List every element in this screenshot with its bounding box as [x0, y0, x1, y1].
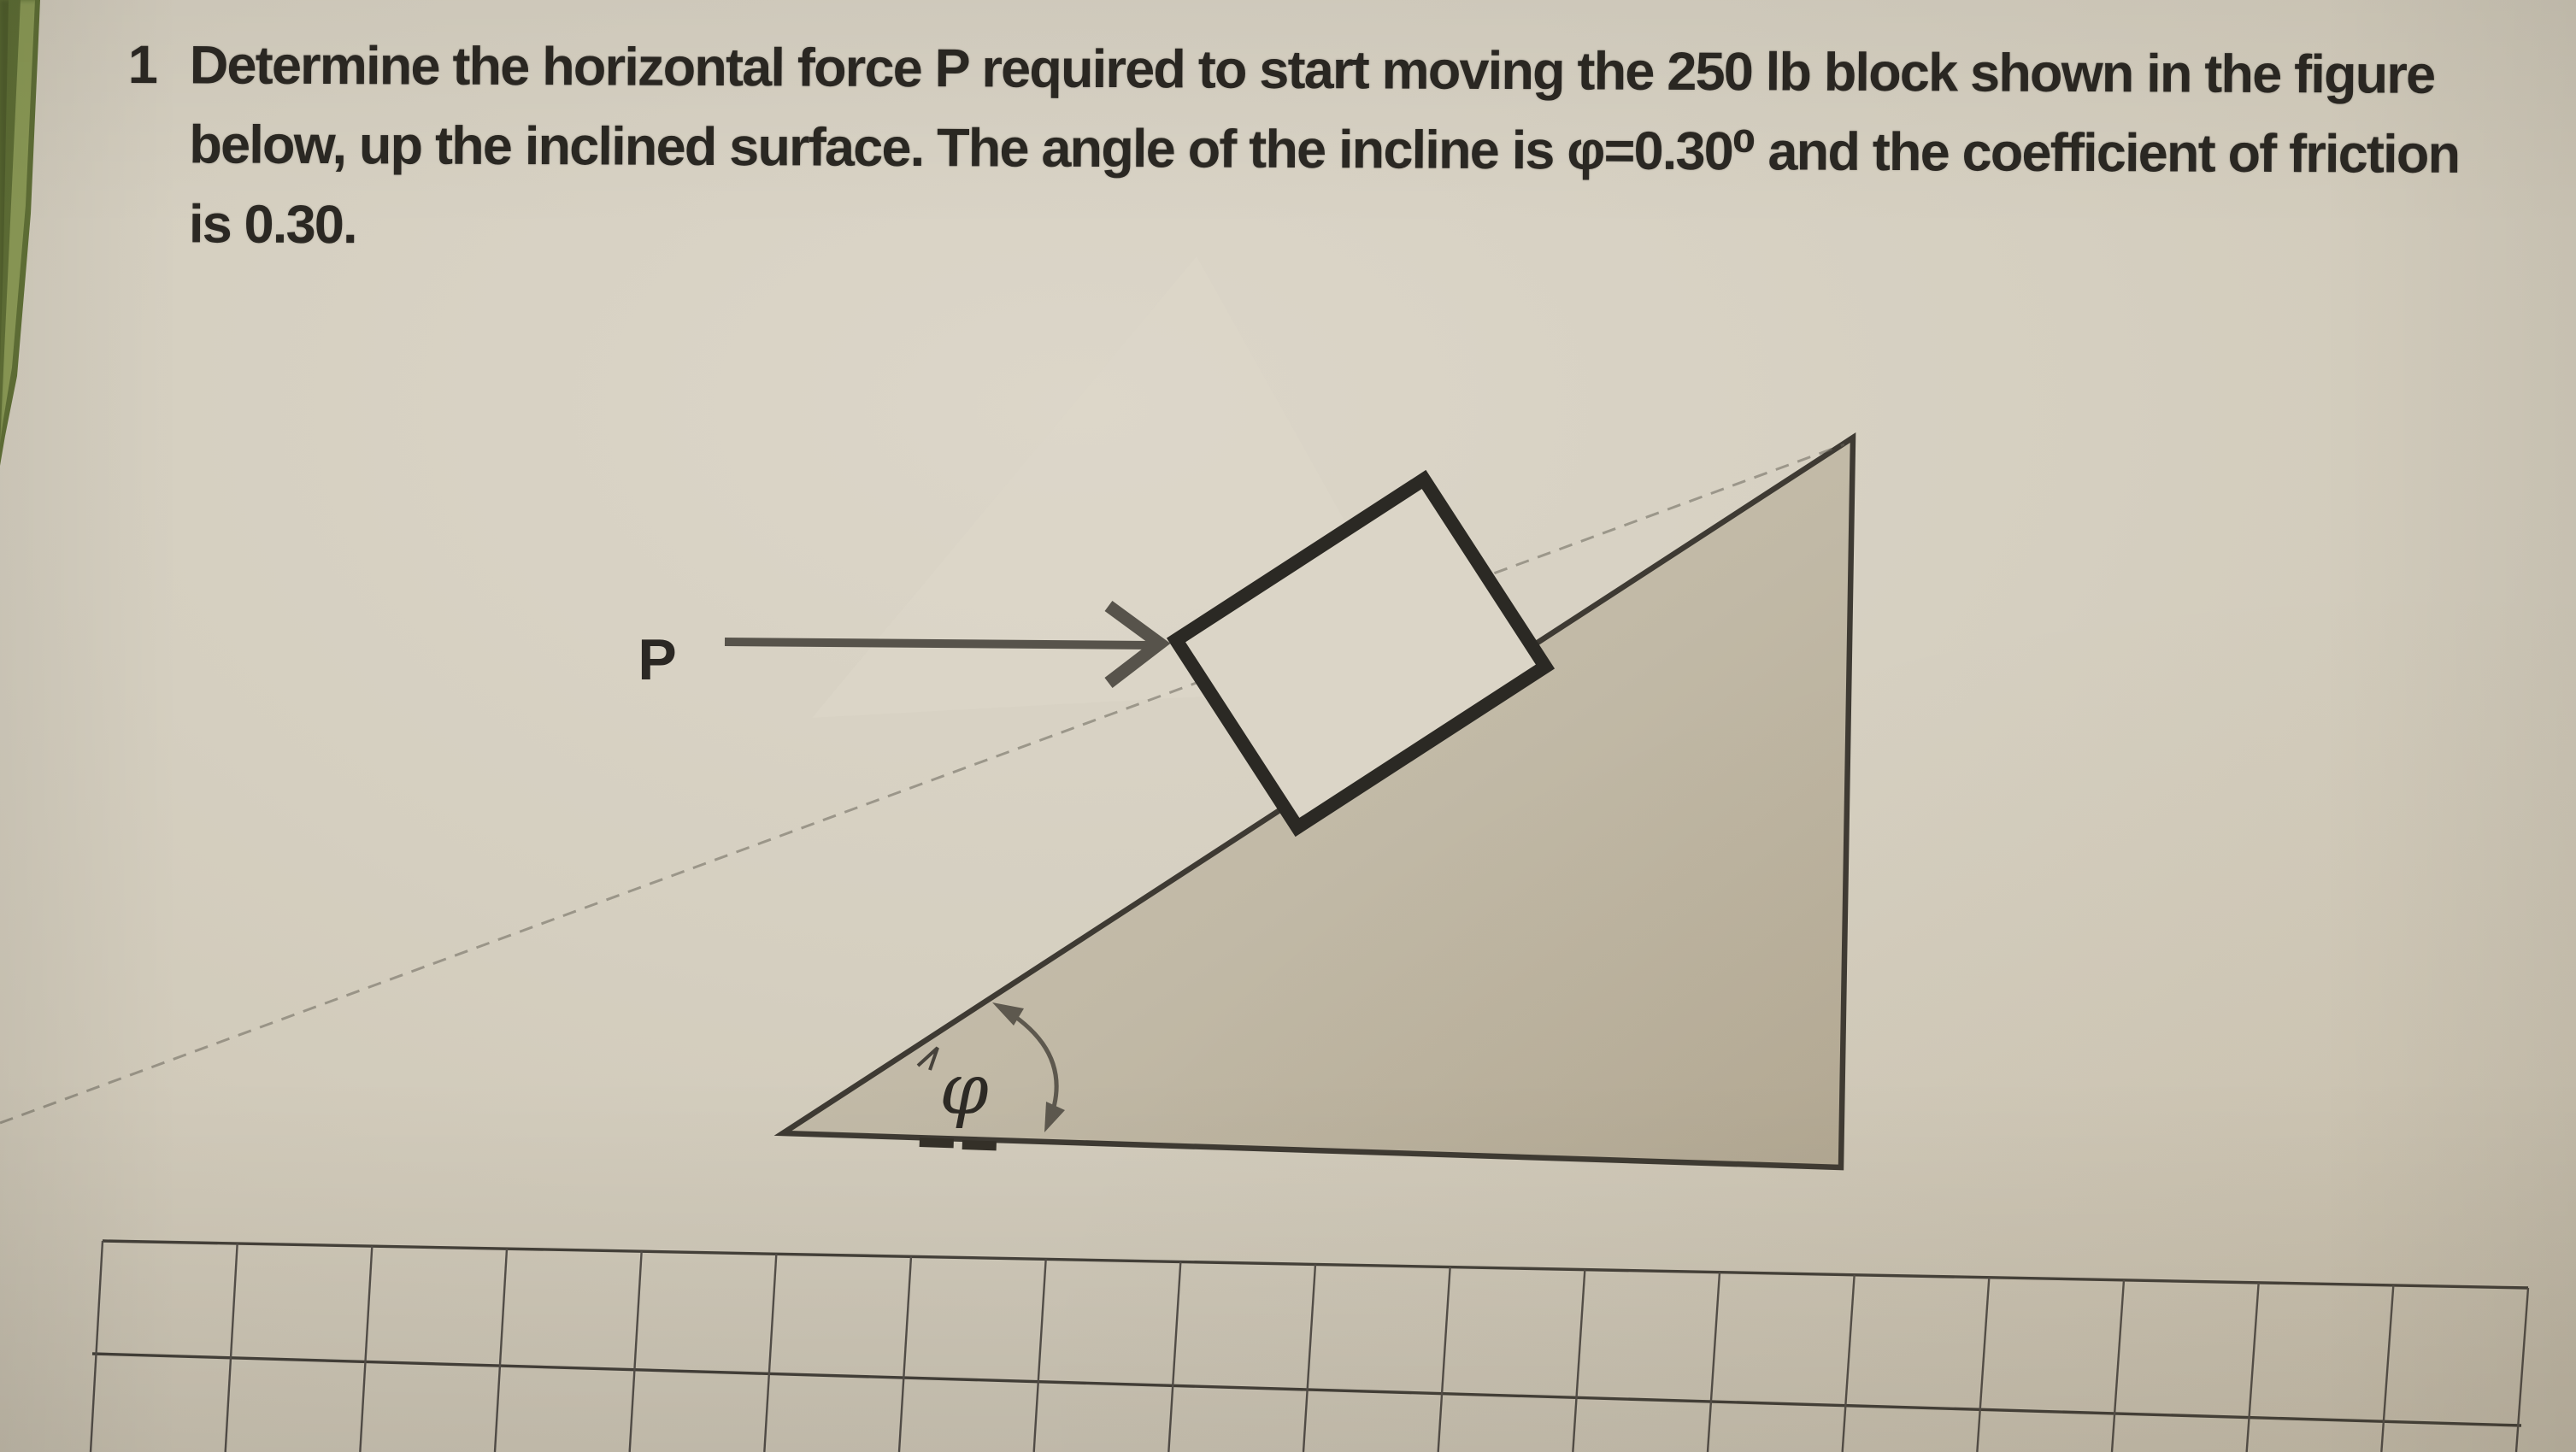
grid-column-line: [226, 1243, 238, 1452]
photographed-worksheet: 1 Determine the horizontal force P requi…: [0, 0, 2576, 1452]
angle-label: φ: [939, 1049, 989, 1131]
grid-column-line: [1168, 1261, 1180, 1452]
base-dash-2: [962, 1140, 997, 1150]
grid-column-line: [2381, 1285, 2393, 1452]
incline-figure: P φ: [0, 0, 2576, 1452]
grid-column-line: [360, 1246, 372, 1452]
grid-column-line: [2247, 1283, 2259, 1452]
grid-column-line: [1977, 1278, 1989, 1452]
grid-column-line: [899, 1256, 911, 1452]
grid-column-line: [495, 1249, 507, 1452]
grid-column-line: [1034, 1259, 1046, 1452]
grid-column-line: [1708, 1273, 1720, 1452]
grid-column-line: [630, 1251, 642, 1452]
grid-column-line: [1573, 1270, 1585, 1452]
grid-column-line: [1438, 1267, 1450, 1452]
grid-column-line: [1303, 1265, 1315, 1452]
grid-column-line: [1843, 1275, 1855, 1452]
grid-column-line: [2112, 1280, 2124, 1452]
grid-column-line: [2516, 1288, 2528, 1452]
force-arrow-shaft: [725, 642, 1150, 645]
base-dash-1: [920, 1137, 954, 1148]
answer-grid: [91, 1241, 2528, 1452]
grid-column-line: [764, 1254, 776, 1452]
grid-column-line: [91, 1241, 103, 1452]
force-label: P: [638, 627, 676, 692]
